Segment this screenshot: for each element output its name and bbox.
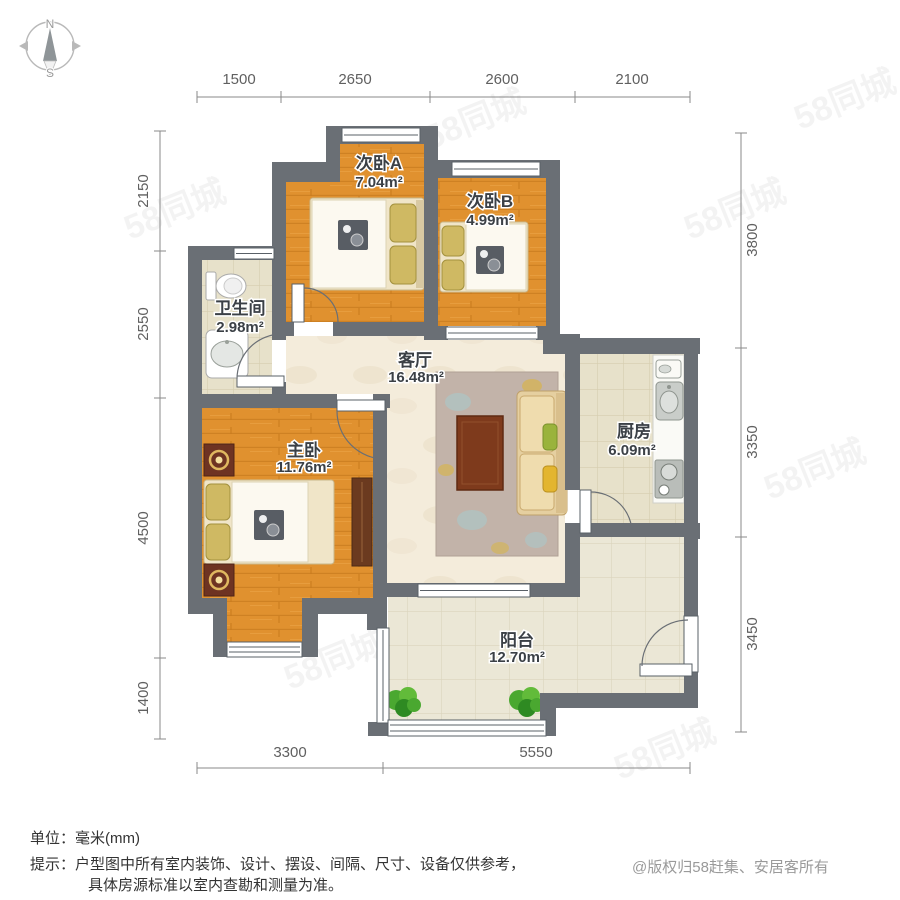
compass-north-label: N [46, 17, 55, 31]
copyright-note: @版权归58赶集、安居客所有 [632, 859, 829, 876]
sink-icon [206, 330, 248, 378]
dim-right-3: 3450 [744, 617, 761, 650]
window-master-bay [227, 642, 302, 657]
unit-note: 单位：毫米(mm) [30, 829, 140, 847]
dim-top-1: 1500 [222, 71, 255, 88]
wardrobe-icon [352, 478, 372, 566]
tip-note-line1: 提示：户型图中所有室内装饰、设计、摆设、间隔、尺寸、设备仅供参考， [30, 856, 525, 873]
stove-icon [655, 460, 683, 498]
dim-top-3: 2600 [485, 71, 518, 88]
living-label: 客厅 [397, 350, 432, 370]
compass-south-label: S [46, 66, 54, 80]
pillow-icon [543, 466, 557, 492]
balcony-label: 阳台 [500, 630, 534, 650]
dim-top-4: 2100 [615, 71, 648, 88]
bedroom-b-label: 次卧B [467, 191, 513, 211]
master-bay-floor [227, 598, 302, 642]
dim-left-4: 1400 [135, 681, 152, 714]
floorplan-svg: 58同城 58同城 58同城 58同城 58同城 58同城 58同城 58同城 … [0, 0, 900, 900]
tip-note-line2: 具体房源标准以室内查勘和测量为准。 [88, 877, 343, 894]
sofa-icon [517, 391, 567, 515]
master-label: 主卧 [287, 440, 321, 460]
dim-bottom-1: 3300 [273, 744, 306, 761]
watermark-text: 58同城 [789, 63, 900, 138]
pillow-icon [543, 424, 557, 450]
bed-icon [204, 480, 334, 564]
kitchen-area: 6.09m² [608, 442, 656, 459]
bedroom-a-area: 7.04m² [355, 174, 403, 191]
living-area: 16.48m² [388, 369, 444, 386]
bedroom-b-area: 4.99m² [466, 212, 514, 229]
compass-north-needle [43, 28, 57, 61]
dim-left-2: 2550 [135, 307, 152, 340]
window-bedroom-b-sliding [446, 327, 538, 339]
window-bedroom-a [342, 128, 420, 142]
watermark-text: 58同城 [759, 433, 871, 508]
coffee-table-icon [457, 416, 503, 490]
window-bedroom-b [452, 162, 540, 176]
dim-left-3: 4500 [135, 511, 152, 544]
nightstand-icon [204, 444, 234, 476]
toilet-icon [206, 272, 246, 300]
nightstand-icon [204, 564, 234, 596]
dim-top-2: 2650 [338, 71, 371, 88]
dim-right-1: 3800 [744, 223, 761, 256]
dimension-top: 1500 2650 2600 2100 [197, 71, 690, 103]
bedroom-a-label: 次卧A [356, 153, 402, 173]
window-balcony-bottom [388, 720, 546, 736]
master-area: 11.76m² [276, 459, 331, 476]
window-living-balcony [418, 584, 530, 597]
compass-west-arrow-icon [19, 41, 28, 51]
balcony-area: 12.70m² [489, 649, 545, 666]
compass-east-arrow-icon [72, 41, 81, 51]
compass: N S [19, 17, 81, 80]
floorplan-page: 58同城 58同城 58同城 58同城 58同城 58同城 58同城 58同城 … [0, 0, 900, 900]
kitchen-label: 厨房 [617, 421, 651, 441]
dim-bottom-2: 5550 [519, 744, 552, 761]
bed-icon [310, 198, 424, 290]
bathroom-label: 卫生间 [215, 298, 266, 318]
footer: 单位：毫米(mm) 提示：户型图中所有室内装饰、设计、摆设、间隔、尺寸、设备仅供… [30, 829, 829, 894]
dim-right-2: 3350 [744, 425, 761, 458]
window-bathroom [234, 248, 274, 259]
watermark-text: 58同城 [609, 713, 721, 788]
bed-icon [440, 222, 528, 292]
watermark-text: 58同城 [679, 173, 791, 248]
window-balcony-left [377, 628, 389, 723]
dim-left-1: 2150 [135, 174, 152, 207]
bathroom-area: 2.98m² [216, 319, 264, 336]
